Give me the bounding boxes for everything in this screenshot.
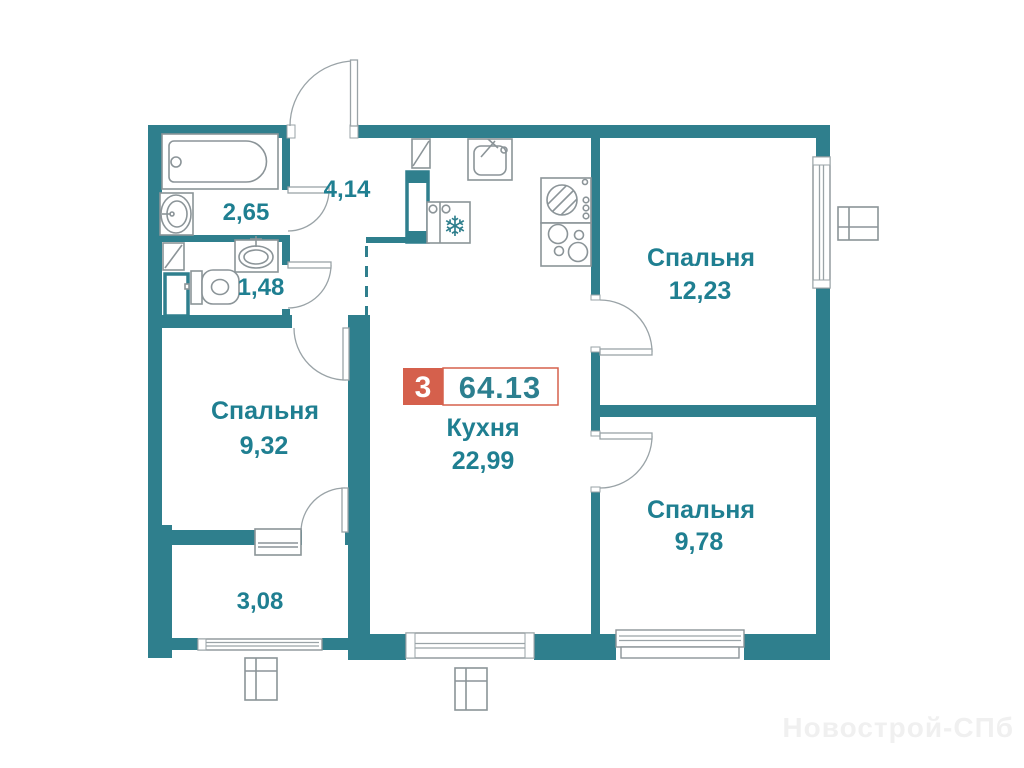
vent-shaft-icon-wc xyxy=(163,243,184,270)
floor-plan-drawing: ❄ xyxy=(0,0,1024,768)
loggia-door xyxy=(301,488,348,532)
window-bedroom-bottom-right xyxy=(616,630,744,658)
bedroom-left-door xyxy=(294,328,349,380)
duct-icon-wc xyxy=(165,274,188,316)
fridge-icon: ❄ xyxy=(427,202,470,243)
bedroom-top-name-label: Спальня xyxy=(647,244,755,272)
bedroom-top-area-label: 12,23 xyxy=(669,277,732,305)
bedroom-left-name-label: Спальня xyxy=(211,397,319,425)
ac-unit-icon-right xyxy=(838,207,878,240)
bedroom-bottom-name-label: Спальня xyxy=(647,496,755,524)
loggia-area-label: 3,08 xyxy=(237,588,284,615)
window-kitchen xyxy=(406,633,534,658)
snowflake-glyph: ❄ xyxy=(443,210,466,243)
bathtub-icon xyxy=(162,134,278,189)
hallway-area-label: 4,14 xyxy=(324,176,371,203)
window-bedroom-top-right xyxy=(813,157,830,288)
bedroom-bottom-right-door xyxy=(591,431,652,492)
cabinet-icon xyxy=(255,529,301,555)
floor-plan-canvas: ❄ xyxy=(0,0,1024,768)
kitchen-name-label: Кухня xyxy=(446,414,519,442)
ac-unit-icon-kitchen xyxy=(455,668,487,710)
toilet-icon xyxy=(185,270,239,304)
wc-door xyxy=(288,262,331,308)
kitchen-sink-icon xyxy=(468,139,512,180)
ac-unit-icon-loggia xyxy=(245,658,277,700)
total-area-value: 64.13 xyxy=(459,370,542,405)
wc-sink-icon xyxy=(235,236,278,272)
kitchen-area-label: 22,99 xyxy=(452,447,515,475)
bedroom-top-right-door xyxy=(591,295,652,355)
watermark-text: Новострой-СПб xyxy=(782,712,1014,743)
stove-icon xyxy=(541,223,591,266)
wc-area-label: 1,48 xyxy=(238,274,285,301)
bedroom-left-area-label: 9,32 xyxy=(240,432,289,460)
bedroom-bottom-area-label: 9,78 xyxy=(675,528,724,556)
duct-icon-kitchen xyxy=(407,172,428,242)
vent-shaft-icon-kitchen xyxy=(412,139,430,168)
total-area-badge: 3 64.13 xyxy=(403,368,558,405)
bathroom-area-label: 2,65 xyxy=(223,199,270,226)
window-loggia xyxy=(198,639,322,650)
washing-machine-icon xyxy=(541,178,591,223)
bathroom-sink-icon xyxy=(160,193,193,235)
entrance-door xyxy=(287,60,358,138)
room-count-value: 3 xyxy=(415,371,432,404)
